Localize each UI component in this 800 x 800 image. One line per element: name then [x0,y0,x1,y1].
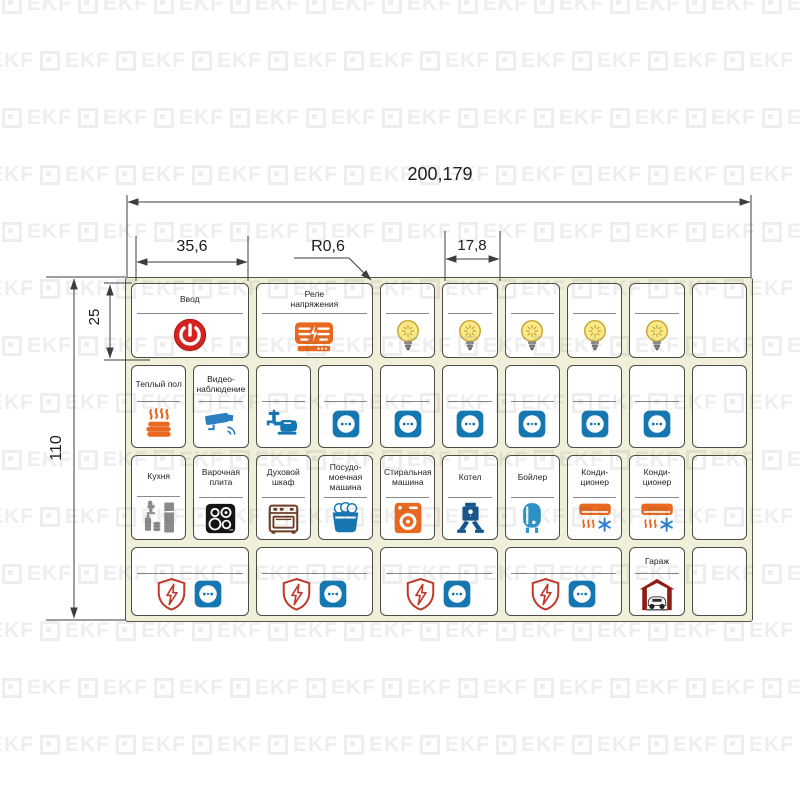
drawing-canvas: { "watermark": { "text": "EKF" }, "dimen… [0,0,800,800]
dim-label-cell-width-label: 35,6 [157,238,227,256]
dim-first-row-height-label: 25 [86,303,106,331]
dim-module-width-label: 17,8 [442,237,502,254]
dim-corner-radius-label: R0,6 [296,238,360,256]
dimension-overlay [0,0,800,800]
dim-total-width-label: 200,179 [360,164,520,185]
dim-total-height-label: 110 [48,430,68,466]
